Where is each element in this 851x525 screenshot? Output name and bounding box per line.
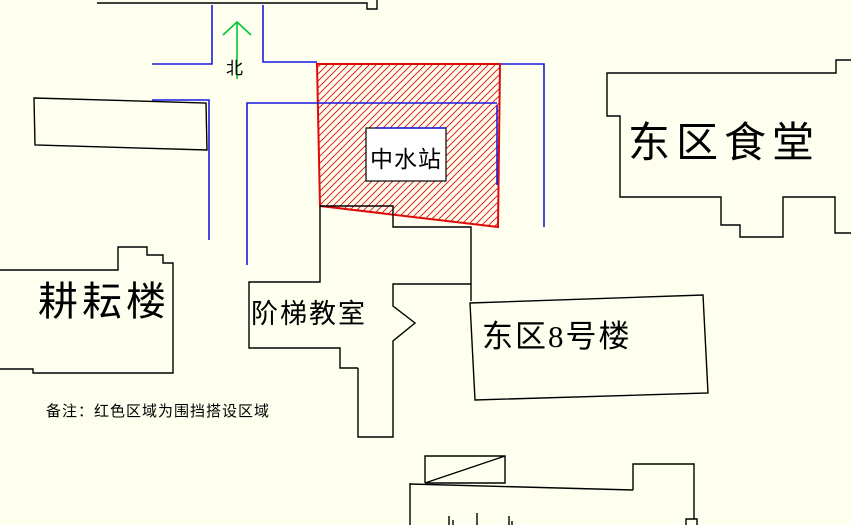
diagonal-building-outline	[425, 456, 505, 483]
boundary-line-bottom	[410, 483, 633, 525]
bottom-edge-marks	[449, 513, 512, 525]
lecture-complex-stem-outline	[358, 368, 393, 437]
label-water-station: 中水站	[366, 148, 446, 172]
label-lecture-hall: 阶梯教室	[251, 300, 367, 328]
label-east-building-8: 东区8号楼	[482, 321, 632, 354]
lecture-complex-chevron-outline	[393, 284, 471, 368]
site-plan-drawing	[0, 0, 851, 525]
road-edge-north-right	[263, 5, 317, 62]
site-plan-canvas: 北 中水站 东区食堂 耕耘楼 阶梯教室 东区8号楼 备注：红色区域为围挡搭设区域	[0, 0, 851, 525]
bottom-right-building-outline	[633, 464, 697, 525]
road-edge-north-left	[152, 5, 212, 64]
road-edge-west	[152, 100, 209, 240]
lecture-hall-outline	[249, 206, 358, 368]
northwest-building-outline	[34, 98, 207, 150]
north-label: 北	[226, 60, 243, 78]
road-edge-east	[500, 64, 544, 227]
label-gengyun-building: 耕耘楼	[38, 281, 170, 323]
top-building-outline	[97, 0, 377, 9]
note-text: 备注：红色区域为围挡搭设区域	[46, 405, 270, 421]
label-east-canteen: 东区食堂	[628, 122, 820, 166]
